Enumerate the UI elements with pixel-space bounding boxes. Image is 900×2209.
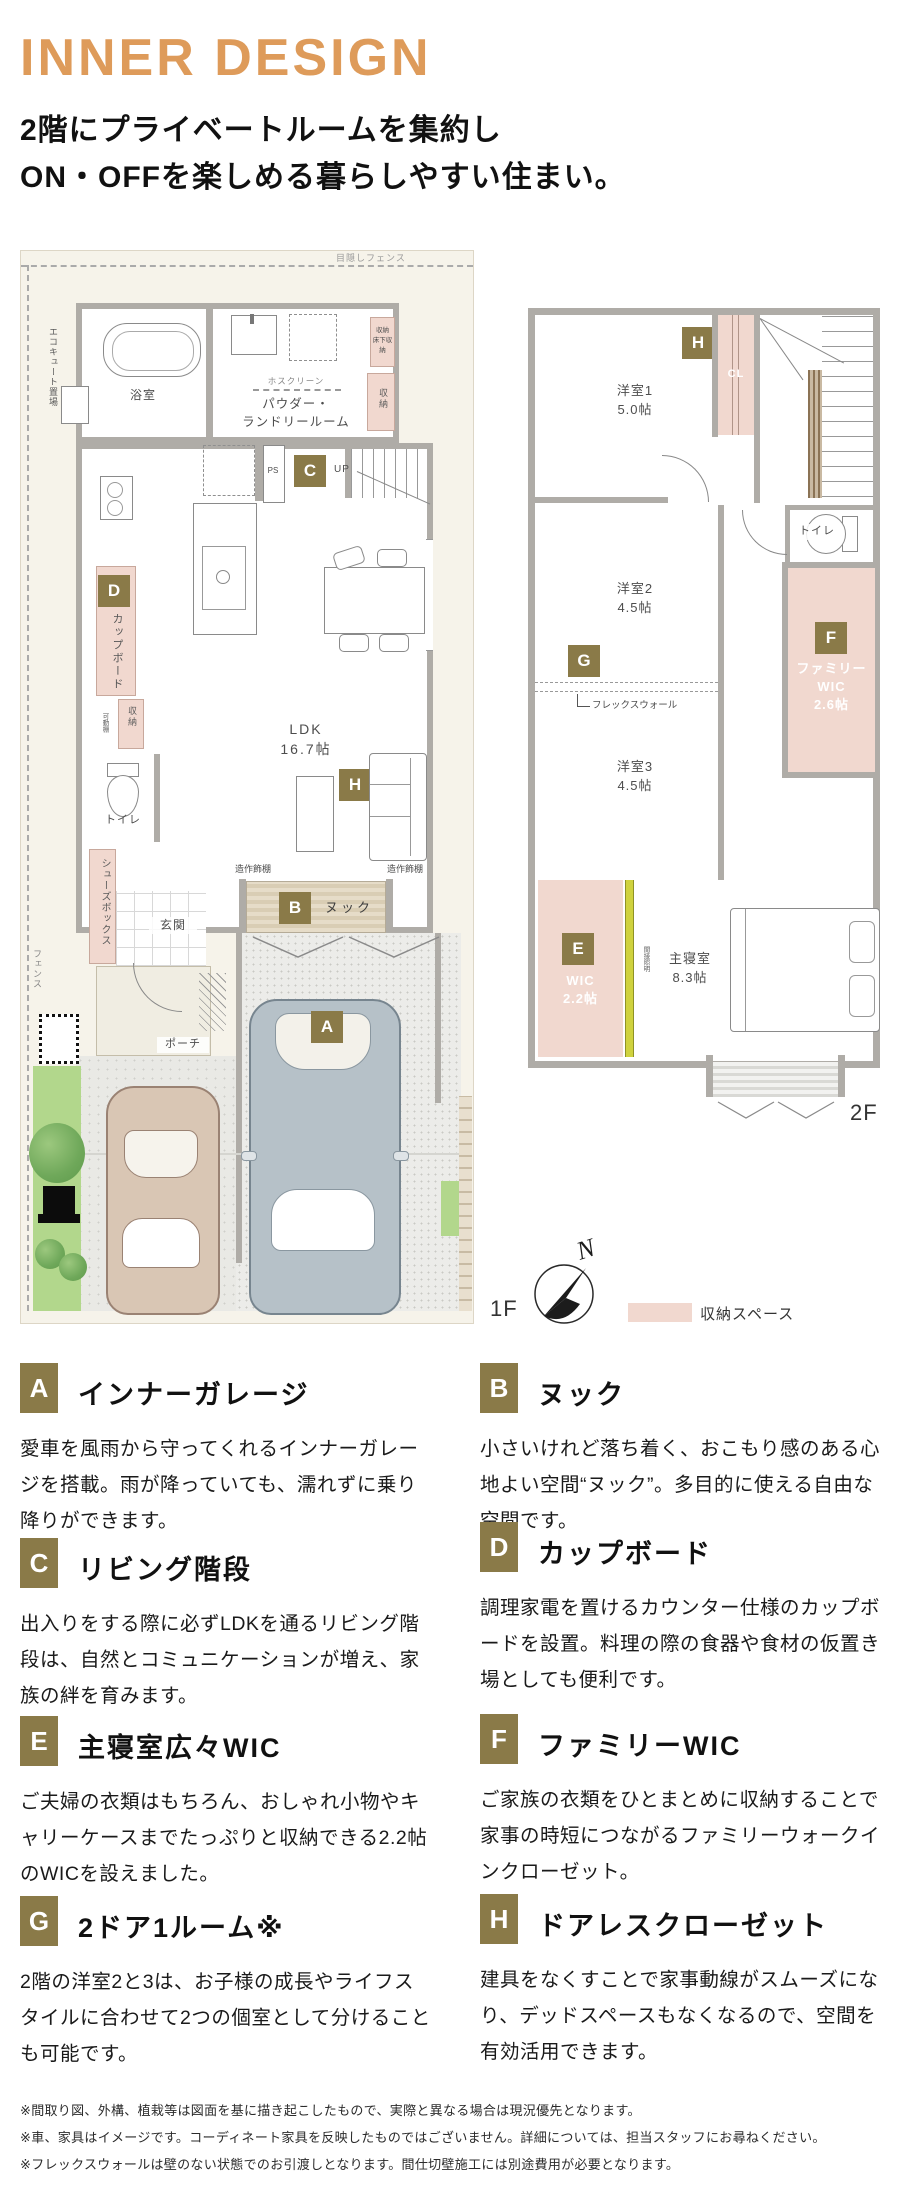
feature-e-title: 主寝室広々WIC <box>78 1726 281 1765</box>
badge-a-plan: A <box>311 1011 343 1043</box>
floor-label-2f: 2F <box>850 1100 878 1126</box>
chair <box>379 634 409 652</box>
badge-g-plan: G <box>568 645 600 677</box>
toilet-label-1f: トイレ <box>99 813 147 829</box>
bath-label: 浴室 <box>113 387 173 404</box>
room3-label: 洋室3 4.5帖 <box>585 758 685 796</box>
ecocute-label: エコキュート置場 <box>47 327 60 407</box>
wall-garage-left <box>236 933 242 1263</box>
room1-label: 洋室1 5.0帖 <box>585 382 685 420</box>
subtitle-line2: ON・OFFを楽しめる暮らしやすい住まい。 <box>20 152 626 196</box>
feature-a-title: インナーガレージ <box>78 1373 309 1412</box>
wall-balcony-right <box>838 1055 845 1097</box>
ps-label: PS <box>264 465 282 477</box>
hosclean-label: ホスクリーン <box>251 375 341 387</box>
flexwall-line2 <box>535 691 718 692</box>
tree-small <box>59 1253 87 1281</box>
feature-h-badge: H <box>480 1894 518 1944</box>
feature-d-badge: D <box>480 1522 518 1572</box>
shoebox-area: シューズボックス <box>89 849 116 964</box>
fridge-space <box>203 445 255 496</box>
feature-h-body: 建具をなくすことで家事動線がスムーズになり、デッドスペースもなくなるので、空間を… <box>480 1962 892 2070</box>
sofa <box>369 753 427 861</box>
feature-b-title: ヌック <box>538 1373 625 1412</box>
badge-f-plan: F <box>815 622 847 654</box>
ecocute-unit <box>61 386 89 424</box>
stairs-2f-banister <box>808 370 822 498</box>
compass: N <box>530 1238 608 1330</box>
mailbox-base <box>38 1214 80 1223</box>
garage-door-marks <box>251 935 441 961</box>
feature-c-badge: C <box>20 1538 58 1588</box>
badge-c-plan: C <box>294 455 326 487</box>
washbasin <box>231 315 277 355</box>
feature-g-badge: G <box>20 1896 58 1946</box>
feature-g-title: 2ドア1ルーム※ <box>78 1906 284 1945</box>
north-label: N <box>572 1238 600 1266</box>
flexwall-line1 <box>535 682 718 683</box>
cupboard-label: カップボード <box>109 613 125 691</box>
feature-e-badge: E <box>20 1716 58 1766</box>
feature-c-body: 出入りをする際に必ずLDKを通るリビング階段は、自然とコミュニケーションが増え、… <box>20 1606 432 1714</box>
subtitle-line1: 2階にプライベートルームを集約し <box>20 105 502 149</box>
movable-shelf-label: 可動棚 <box>99 713 109 733</box>
wall-bath-powder <box>206 309 213 437</box>
badge-e-plan: E <box>562 933 594 965</box>
bathtub <box>103 323 201 377</box>
badge-d-plan: D <box>98 575 130 607</box>
shelf-label-left: 造作飾棚 <box>221 863 285 876</box>
feature-g-body: 2階の洋室2と3は、お子様の成長やライフスタイルに合わせて2つの個室として分ける… <box>20 1964 432 2072</box>
hosclean-line <box>253 389 341 391</box>
dining-table <box>324 567 425 634</box>
feature-c-title: リビング階段 <box>78 1548 252 1587</box>
floorplan-2f: 洋室1 5.0帖 H CL トイレ 洋室2 4.5帖 G フレックスウォール 洋… <box>520 300 888 1115</box>
wall-balcony-left <box>706 1055 713 1097</box>
coffee-table <box>296 776 334 852</box>
stove <box>100 476 133 520</box>
badge-h-plan-2f: H <box>682 327 714 359</box>
feature-f-body: ご家族の衣類をひとまとめに収納することで家事の時短につながるファミリーウォークイ… <box>480 1782 892 1890</box>
indirect-light-strip <box>625 880 634 1057</box>
wall-kitchen <box>255 443 263 501</box>
wall-toilet-2f-top <box>785 505 880 510</box>
footnote-1: ※間取り図、外構、植栽等は図面を基に描き起こしたもので、実際と異なる場合は現況優… <box>20 2100 641 2119</box>
feature-h-title: ドアレスクローゼット <box>538 1904 828 1943</box>
ldk-label: LDK 16.7帖 <box>261 719 351 760</box>
feature-d-body: 調理家電を置けるカウンター仕様のカップボードを設置。料理の際の食器や食材の仮置き… <box>480 1590 892 1698</box>
floorplan-1f: 目隠しフェンス エコキュート置場 浴室 ホスクリーン パウダー・ ランドリールー… <box>20 250 474 1324</box>
family-wic-area: F ファミリー WIC 2.6帖 <box>788 568 875 772</box>
washer-space <box>289 314 337 361</box>
feature-f-badge: F <box>480 1714 518 1764</box>
feature-d-title: カップボード <box>538 1532 712 1571</box>
window-right <box>426 539 433 651</box>
porch-hatch <box>199 973 226 1031</box>
car-garage <box>249 999 401 1315</box>
master-label: 主寝室 8.3帖 <box>648 950 732 988</box>
chair <box>339 634 369 652</box>
fence-line-top <box>21 265 473 267</box>
badge-h-plan-1f: H <box>339 769 371 801</box>
room2-label: 洋室2 4.5帖 <box>585 580 685 618</box>
wall-room1-bottom <box>528 497 668 503</box>
wall-stairs-2f <box>754 315 760 503</box>
wic-area: E WIC 2.2帖 <box>538 880 623 1057</box>
porch-label: ポーチ <box>157 1037 209 1053</box>
floor-label-1f: 1F <box>490 1296 518 1322</box>
fence-side-label: フェンス <box>31 949 44 989</box>
block-wall <box>459 1096 472 1311</box>
storage-box-2: 収納 <box>367 373 395 431</box>
nook-label: ヌック <box>319 899 379 918</box>
entrance-label: 玄関 <box>149 917 197 934</box>
page-title: INNER DESIGN <box>20 28 432 88</box>
footnote-3: ※フレックスウォールは壁のない状態でのお引渡しとなります。間仕切壁施工には別途費… <box>20 2154 679 2173</box>
storage-floor-box: 収納 床下収納 <box>370 317 395 367</box>
car-driveway <box>106 1086 220 1315</box>
closet-cl: CL <box>718 315 754 435</box>
mailbox <box>43 1186 75 1216</box>
balcony <box>713 1062 838 1097</box>
kitchen-island <box>193 503 257 635</box>
wall-fwic-bottom <box>782 772 880 778</box>
mekakushi-fence-label: 目隠しフェンス <box>336 252 406 265</box>
up-label: UP <box>329 463 355 478</box>
flower-bed <box>39 1014 79 1064</box>
chair <box>377 549 407 567</box>
powder-room-label: パウダー・ ランドリールーム <box>216 395 376 431</box>
badge-b-plan: B <box>279 892 311 924</box>
balcony-door-marks <box>716 1100 836 1122</box>
tree-large <box>29 1123 85 1183</box>
stairs-2f-treads <box>822 315 873 497</box>
shelf-label-right: 造作飾棚 <box>373 863 437 876</box>
footnote-2: ※車、家具はイメージです。コーディネート家具を反映したものではございません。詳細… <box>20 2127 826 2146</box>
feature-e-body: ご夫婦の衣類はもちろん、おしゃれ小物やキャリーケースまでたっぷりと収納できる2.… <box>20 1784 432 1892</box>
feature-f-title: ファミリーWIC <box>538 1724 741 1763</box>
legend-label: 収納スペース <box>700 1303 794 1324</box>
grass-right <box>441 1181 459 1236</box>
legend-swatch <box>628 1303 692 1322</box>
wall-nook-left <box>239 879 246 933</box>
wall-hall <box>718 505 724 880</box>
wall-toilet <box>154 754 160 842</box>
flexwall-bracket <box>577 694 590 707</box>
stairs-1f <box>351 449 427 498</box>
storage-mid-box: 収納 <box>118 699 144 749</box>
wall-nook-right <box>386 879 393 933</box>
bed <box>730 908 880 1032</box>
feature-b-body: 小さいけれど落ち着く、おこもり感のある心地よい空間“ヌック”。多目的に使える自由… <box>480 1431 892 1539</box>
feature-a-badge: A <box>20 1363 58 1413</box>
feature-b-badge: B <box>480 1363 518 1413</box>
flexwall-label: フレックスウォール <box>592 699 702 713</box>
toilet-label-2f: トイレ <box>792 524 842 540</box>
feature-a-body: 愛車を風雨から守ってくれるインナーガレージを搭載。雨が降っていても、濡れずに乗り… <box>20 1431 432 1539</box>
